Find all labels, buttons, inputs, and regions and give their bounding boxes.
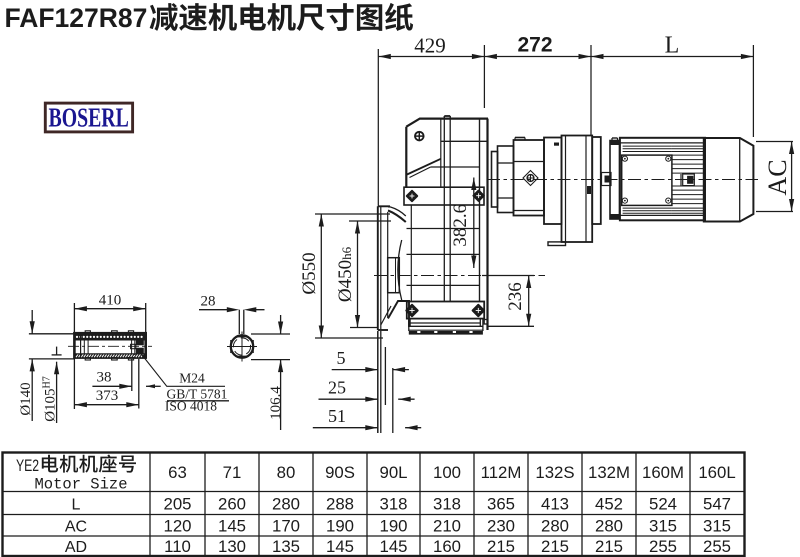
svg-text:YE2: YE2 [16, 457, 39, 475]
svg-text:382.6: 382.6 [450, 204, 471, 247]
svg-text:Ø140: Ø140 [18, 382, 34, 415]
svg-text:Motor Size: Motor Size [35, 476, 128, 494]
svg-text:288: 288 [326, 495, 354, 514]
svg-text:413: 413 [541, 495, 569, 514]
svg-text:AC: AC [763, 159, 792, 195]
svg-text:90L: 90L [380, 463, 408, 482]
svg-text:100: 100 [433, 463, 461, 482]
svg-text:210: 210 [433, 517, 461, 536]
svg-text:AD: AD [65, 539, 87, 556]
svg-text:160L: 160L [698, 463, 735, 482]
svg-text:130: 130 [218, 537, 246, 556]
svg-text:315: 315 [703, 517, 731, 536]
svg-text:410: 410 [99, 293, 122, 309]
svg-text:160: 160 [433, 537, 461, 556]
svg-text:112M: 112M [481, 463, 522, 482]
svg-text:365: 365 [487, 495, 515, 514]
svg-text:145: 145 [380, 537, 408, 556]
svg-text:190: 190 [380, 517, 408, 536]
svg-text:255: 255 [649, 537, 677, 556]
svg-text:230: 230 [487, 517, 515, 536]
svg-text:547: 547 [703, 495, 731, 514]
svg-text:110: 110 [164, 537, 191, 556]
svg-text:215: 215 [487, 537, 515, 556]
svg-text:280: 280 [595, 517, 623, 536]
svg-text:260: 260 [218, 495, 246, 514]
svg-text:AC: AC [65, 519, 87, 536]
svg-text:373: 373 [96, 388, 119, 404]
svg-text:120: 120 [164, 517, 192, 536]
svg-text:429: 429 [414, 34, 446, 58]
svg-text:145: 145 [326, 537, 354, 556]
svg-text:160M: 160M [642, 463, 684, 482]
svg-text:FAF127R87: FAF127R87 [5, 3, 148, 33]
svg-text:280: 280 [541, 517, 569, 536]
svg-text:80: 80 [277, 463, 296, 482]
svg-text:145: 145 [218, 517, 246, 536]
svg-text:38: 38 [97, 370, 112, 386]
svg-text:255: 255 [703, 537, 731, 556]
svg-text:5: 5 [337, 348, 346, 368]
svg-text:318: 318 [380, 495, 408, 514]
svg-text:ISO 4018: ISO 4018 [165, 399, 217, 414]
svg-text:452: 452 [595, 495, 623, 514]
svg-text:90S: 90S [325, 463, 355, 482]
svg-text:135: 135 [272, 537, 300, 556]
svg-text:L: L [72, 497, 81, 514]
svg-text:BOSERL: BOSERL [49, 104, 129, 134]
svg-text:272: 272 [517, 34, 552, 57]
svg-text:25: 25 [328, 378, 346, 398]
svg-text:205: 205 [164, 495, 192, 514]
svg-text:106.4: 106.4 [268, 386, 284, 420]
svg-text:Ø550: Ø550 [299, 252, 320, 294]
svg-text:190: 190 [326, 517, 354, 536]
svg-text:Ø450h6: Ø450h6 [335, 246, 356, 302]
svg-text:215: 215 [595, 537, 623, 556]
svg-text:318: 318 [433, 495, 461, 514]
svg-text:215: 215 [541, 537, 569, 556]
svg-text:63: 63 [168, 463, 187, 482]
svg-text:51: 51 [328, 406, 346, 426]
svg-text:524: 524 [649, 495, 677, 514]
svg-text:280: 280 [272, 495, 300, 514]
svg-text:L: L [665, 33, 680, 59]
svg-text:236: 236 [505, 282, 526, 311]
svg-text:315: 315 [649, 517, 677, 536]
svg-text:132M: 132M [588, 463, 630, 482]
svg-text:170: 170 [272, 517, 300, 536]
svg-text:M24: M24 [179, 371, 205, 386]
svg-text:71: 71 [223, 463, 242, 482]
svg-text:28: 28 [201, 294, 216, 310]
svg-text:132S: 132S [535, 463, 574, 482]
